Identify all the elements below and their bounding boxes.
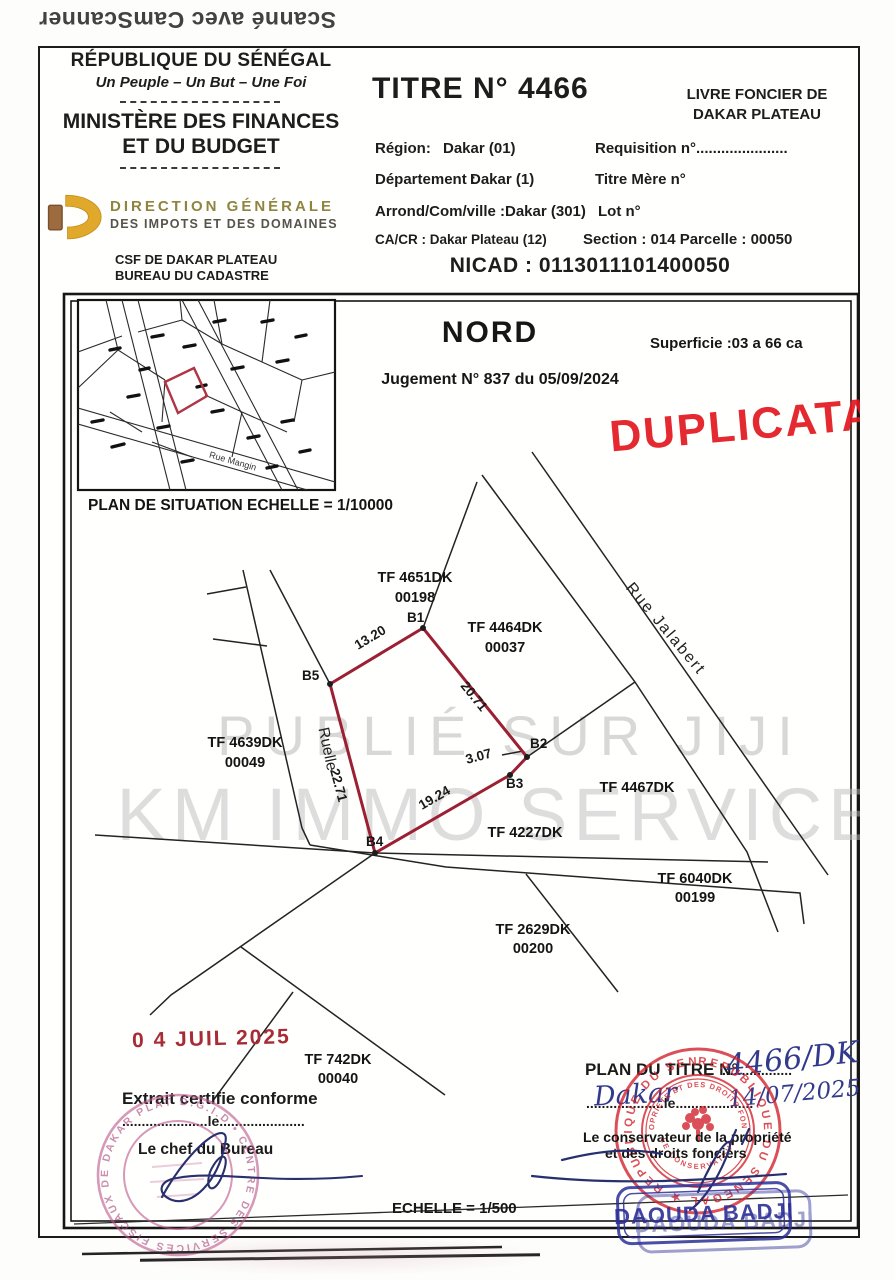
situation-map-caption: PLAN DE SITUATION ECHELLE = 1/10000 bbox=[88, 497, 393, 514]
direction-generale-label: DIRECTION GÉNÉRALE bbox=[110, 198, 334, 215]
region-label: Région: bbox=[375, 140, 431, 157]
superficie-label: Superficie :03 a 66 ca bbox=[650, 335, 803, 352]
camscanner-watermark: Scanné avec CamScanner bbox=[16, 6, 336, 33]
situation-map: Rue Mangin PLAN DE SITUATION ECHELLE = 1… bbox=[78, 300, 393, 514]
ministry-line2: ET DU BUDGET bbox=[45, 135, 357, 159]
parcel-number: 00037 bbox=[485, 640, 525, 656]
parcel-label: TF 4464DK bbox=[468, 620, 543, 636]
duplicata-stamp: DUPLICATA bbox=[608, 390, 860, 462]
echelle-label: ECHELLE = 1/500 bbox=[392, 1200, 517, 1217]
scanned-land-title-page: Scanné avec CamScanner RÉPUBLIQUE DU SÉN… bbox=[0, 0, 895, 1280]
ministry-line1: MINISTÈRE DES FINANCES bbox=[45, 110, 357, 134]
vertex-label: B5 bbox=[302, 668, 320, 683]
parcel-number: 00199 bbox=[675, 890, 715, 906]
lot-field: Lot n° bbox=[598, 203, 641, 220]
parcel-number: 00198 bbox=[395, 590, 435, 606]
date-stamp: 0 4 JUIL 2025 bbox=[132, 1025, 291, 1052]
scan-bottom-line bbox=[140, 1253, 540, 1262]
vertex-label: B2 bbox=[530, 736, 547, 751]
scan-edge-artifact bbox=[82, 1247, 502, 1254]
dashed-divider bbox=[120, 167, 280, 169]
nord-label: NORD bbox=[442, 316, 538, 349]
jugement-label: Jugement N° 837 du 05/09/2024 bbox=[381, 371, 619, 388]
parcel-number: 00040 bbox=[318, 1071, 358, 1087]
title-number: TITRE N° 4466 bbox=[372, 72, 589, 106]
parcel-label: TF 6040DK bbox=[658, 871, 733, 887]
parcel-label: TF 4639DK bbox=[208, 735, 283, 751]
parcel-label: TF 4651DK bbox=[378, 570, 453, 586]
csf-line1: CSF DE DAKAR PLATEAU bbox=[115, 252, 277, 267]
cacr-field: CA/CR : Dakar Plateau (12) bbox=[375, 232, 547, 247]
region-value: Dakar (01) bbox=[443, 140, 516, 157]
section-parcelle-field: Section : 014 Parcelle : 00050 bbox=[583, 231, 792, 248]
dgid-logo-icon bbox=[44, 190, 102, 246]
nicad-number: NICAD : 0113011101400050 bbox=[405, 254, 775, 278]
conservateur-line1: Le conservateur de la propriété bbox=[583, 1129, 792, 1145]
arrond-label: Arrond/Com/ville : bbox=[375, 203, 505, 220]
edge-length-label: 13.20 bbox=[352, 622, 389, 652]
livre-line1: LIVRE FONCIER DE bbox=[662, 85, 852, 105]
parcel-label: TF 742DK bbox=[305, 1052, 372, 1068]
parcel-label: TF 4467DK bbox=[600, 780, 675, 796]
vertex-label: B1 bbox=[407, 610, 425, 625]
rue-jalabert-street-label: Rue Jalabert bbox=[622, 580, 709, 679]
departement-value: Dakar (1) bbox=[470, 171, 534, 188]
dashed-divider bbox=[120, 101, 280, 103]
livre-line2: DAKAR PLATEAU bbox=[662, 105, 852, 125]
parcel-label: TF 2629DK bbox=[496, 922, 571, 938]
requisition-field: Requisition n°...................... bbox=[595, 140, 788, 157]
vertex-label: B4 bbox=[366, 834, 384, 849]
titre-mere-field: Titre Mère n° bbox=[595, 171, 686, 188]
impots-domaines-label: DES IMPOTS ET DES DOMAINES bbox=[110, 217, 338, 231]
departement-label: Département : bbox=[375, 171, 476, 188]
arrond-value: Dakar (301) bbox=[505, 203, 586, 220]
national-motto: Un Peuple – Un But – Une Foi bbox=[45, 74, 357, 91]
parcel-number: 00200 bbox=[513, 941, 553, 957]
cadastral-plan-svg: Rue Mangin PLAN DE SITUATION ECHELLE = 1… bbox=[62, 292, 860, 1280]
livre-foncier-label: LIVRE FONCIER DE DAKAR PLATEAU bbox=[662, 85, 852, 125]
vertex-label: B3 bbox=[506, 776, 524, 791]
parcel-number: 00049 bbox=[225, 755, 265, 771]
republic-title: RÉPUBLIQUE DU SÉNÉGAL bbox=[45, 50, 357, 72]
parcel-label: TF 4227DK bbox=[488, 825, 563, 841]
csf-line2: BUREAU DU CADASTRE bbox=[115, 268, 269, 283]
